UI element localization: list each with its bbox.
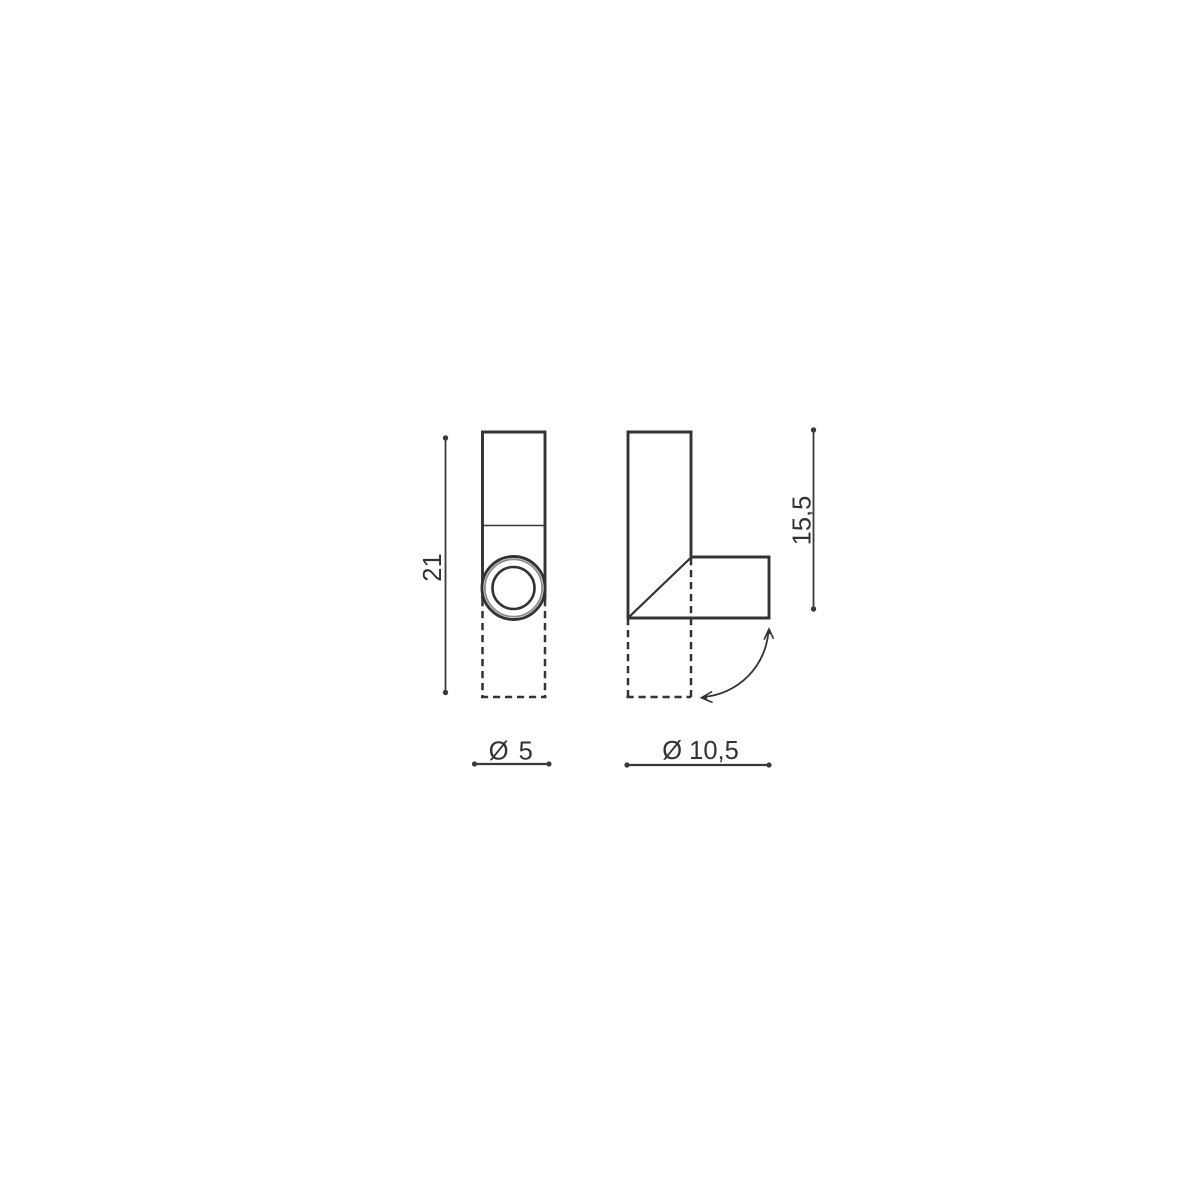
svg-text:Ø 5: Ø 5 [489, 738, 535, 766]
svg-text:21: 21 [419, 553, 447, 581]
svg-text:Ø 10,5: Ø 10,5 [662, 737, 739, 765]
svg-text:15,5: 15,5 [789, 496, 817, 546]
